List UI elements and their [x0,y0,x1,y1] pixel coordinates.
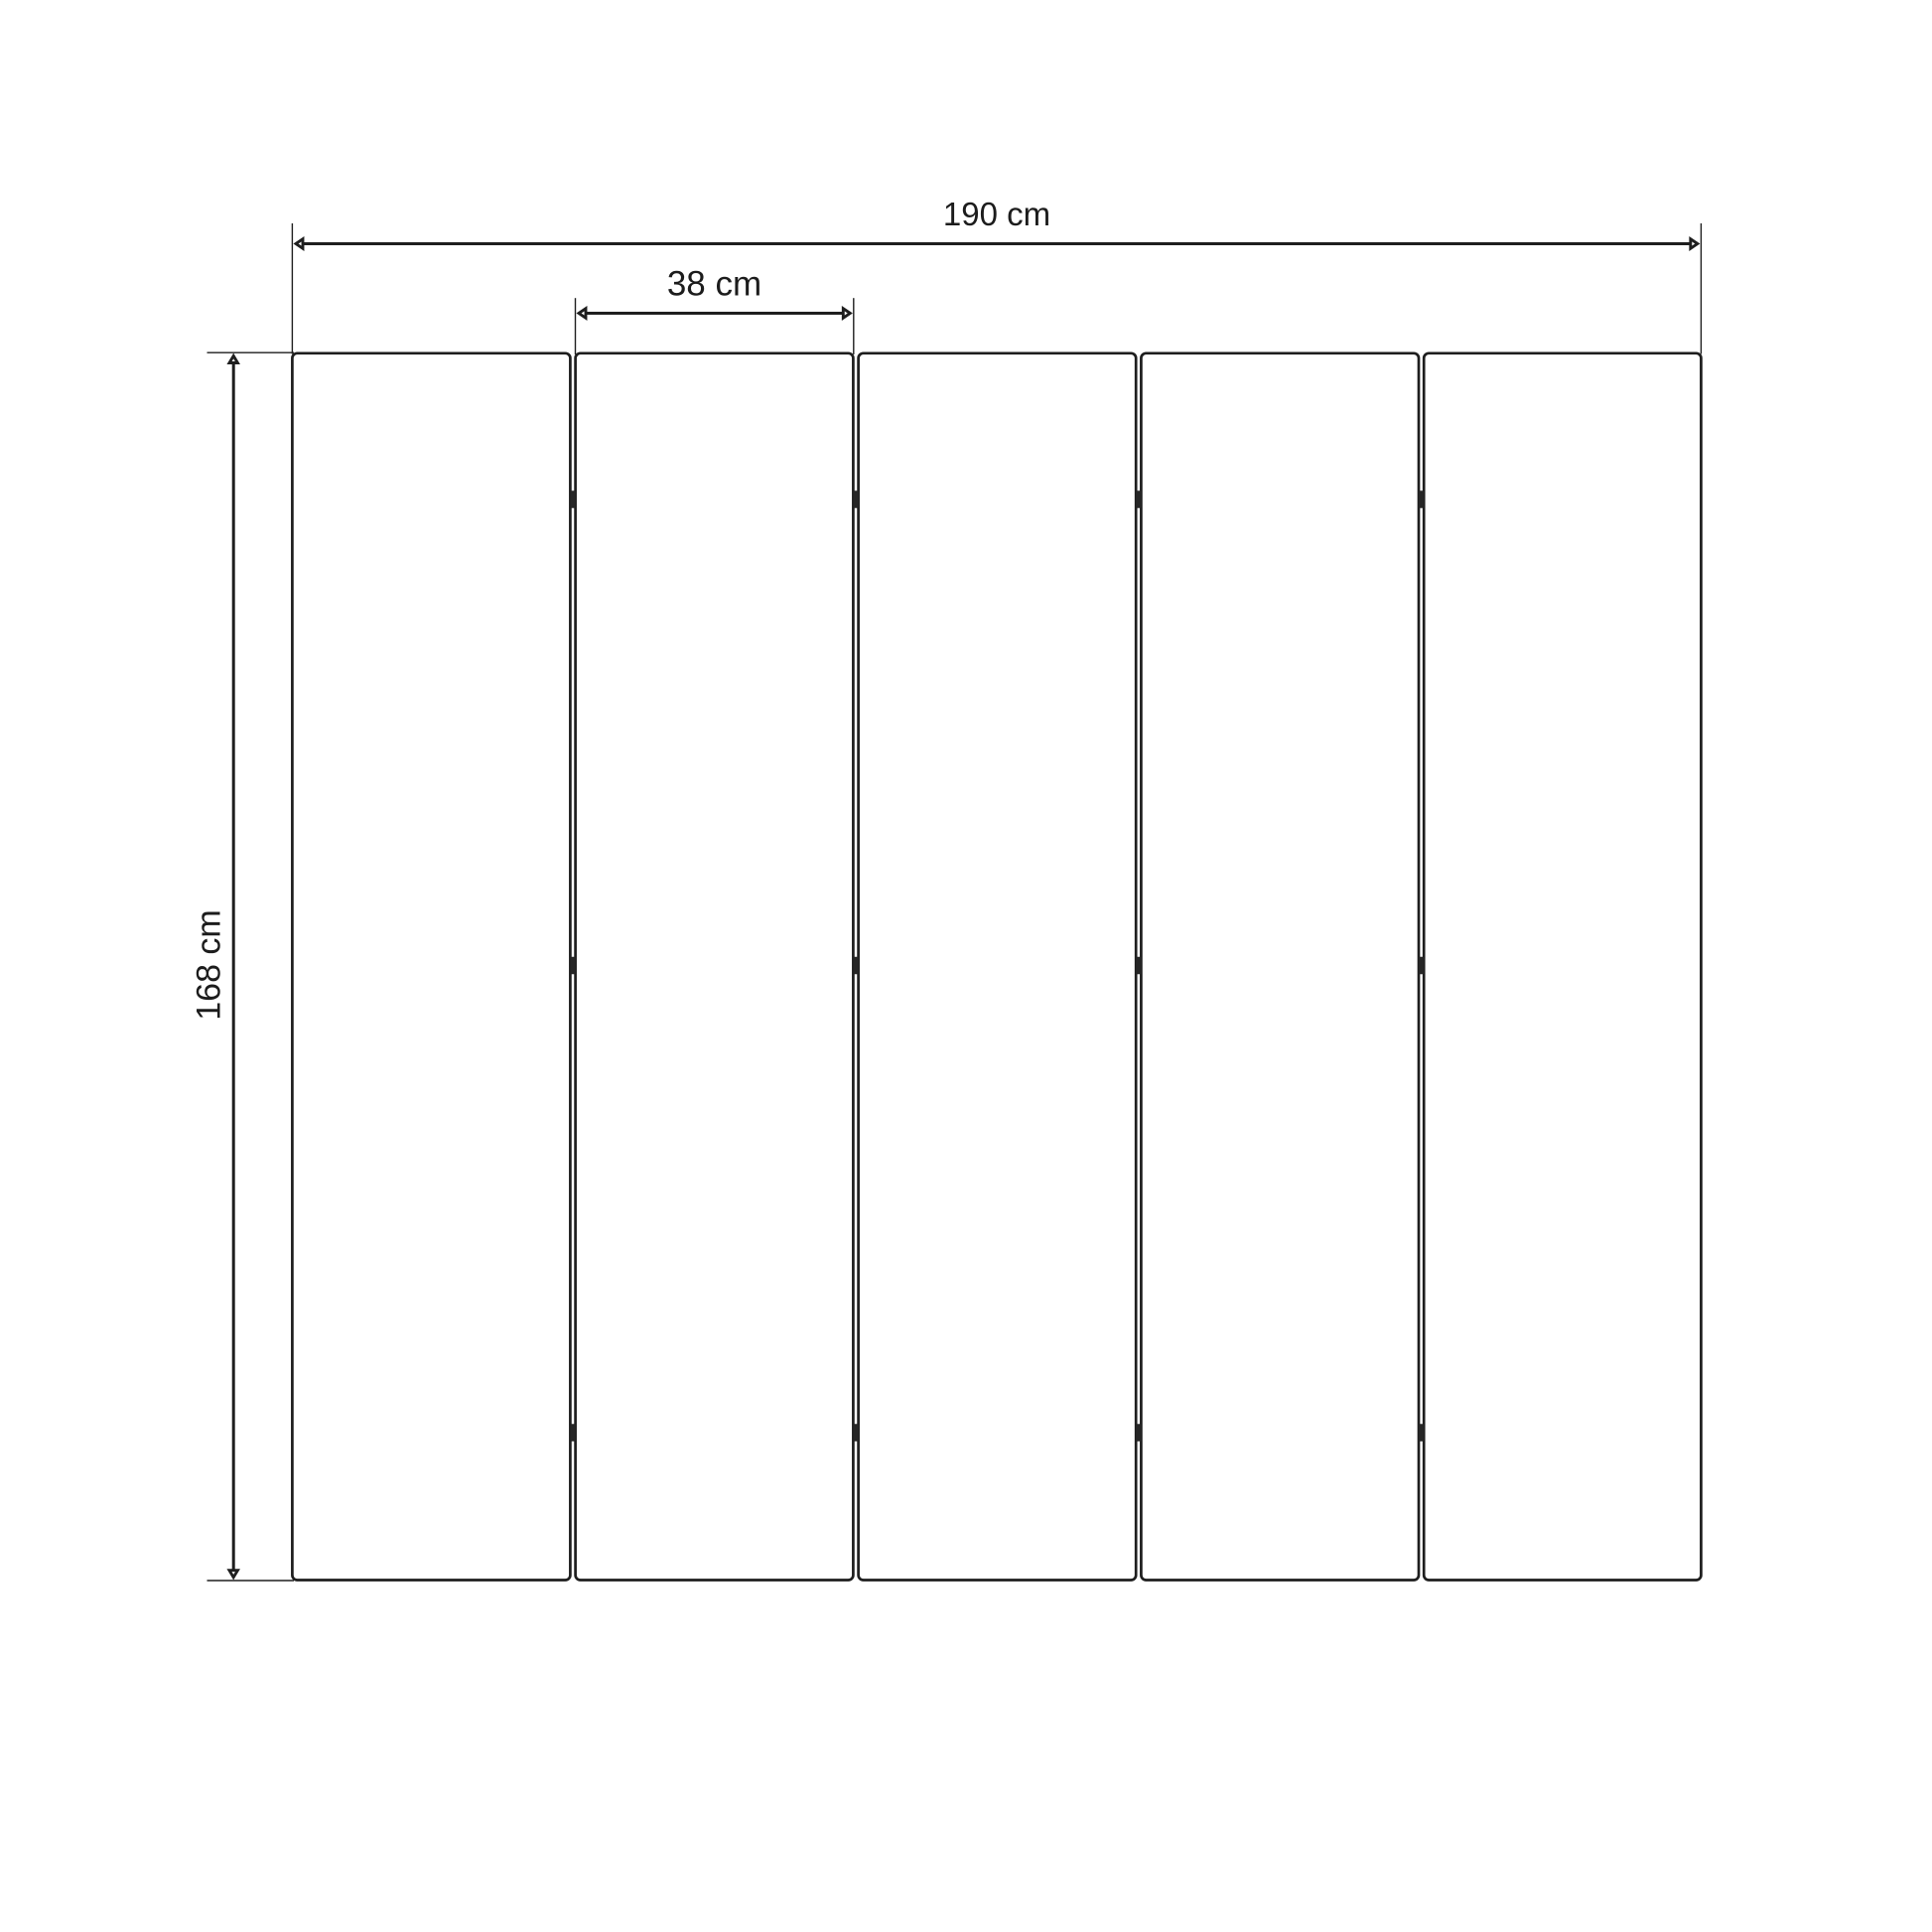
svg-text:190 cm: 190 cm [943,196,1050,232]
svg-text:168 cm: 168 cm [190,909,227,1021]
svg-text:38 cm: 38 cm [667,265,761,304]
